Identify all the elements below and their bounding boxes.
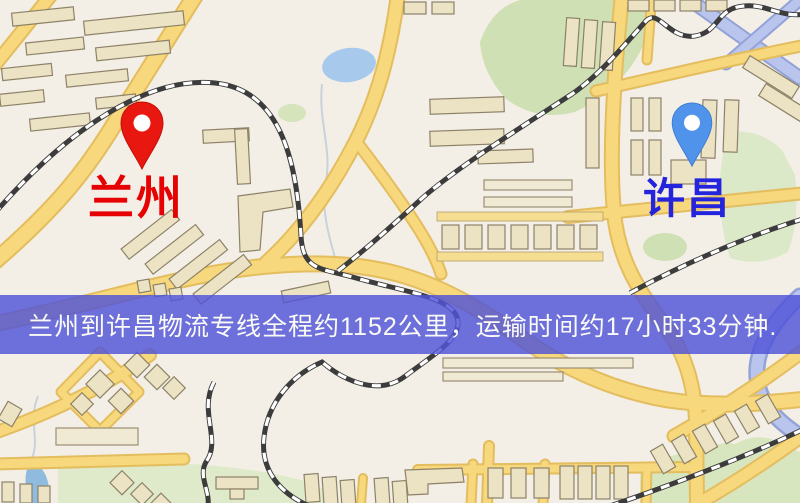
map-label-xuchang: 许昌 [643, 179, 731, 221]
blue-map-pin-icon[interactable] [671, 102, 713, 168]
map-canvas[interactable]: 兰州 许昌 兰州到许昌物流专线全程约1152公里，运输时间约17小时33分钟. [0, 0, 800, 503]
route-info-banner: 兰州到许昌物流专线全程约1152公里，运输时间约17小时33分钟. [0, 295, 800, 354]
red-map-pin-icon[interactable] [120, 101, 164, 171]
map-graphic [0, 0, 800, 503]
route-info-text: 兰州到许昌物流专线全程约1152公里，运输时间约17小时33分钟. [28, 307, 777, 343]
map-label-lanzhou: 兰州 [88, 176, 184, 222]
